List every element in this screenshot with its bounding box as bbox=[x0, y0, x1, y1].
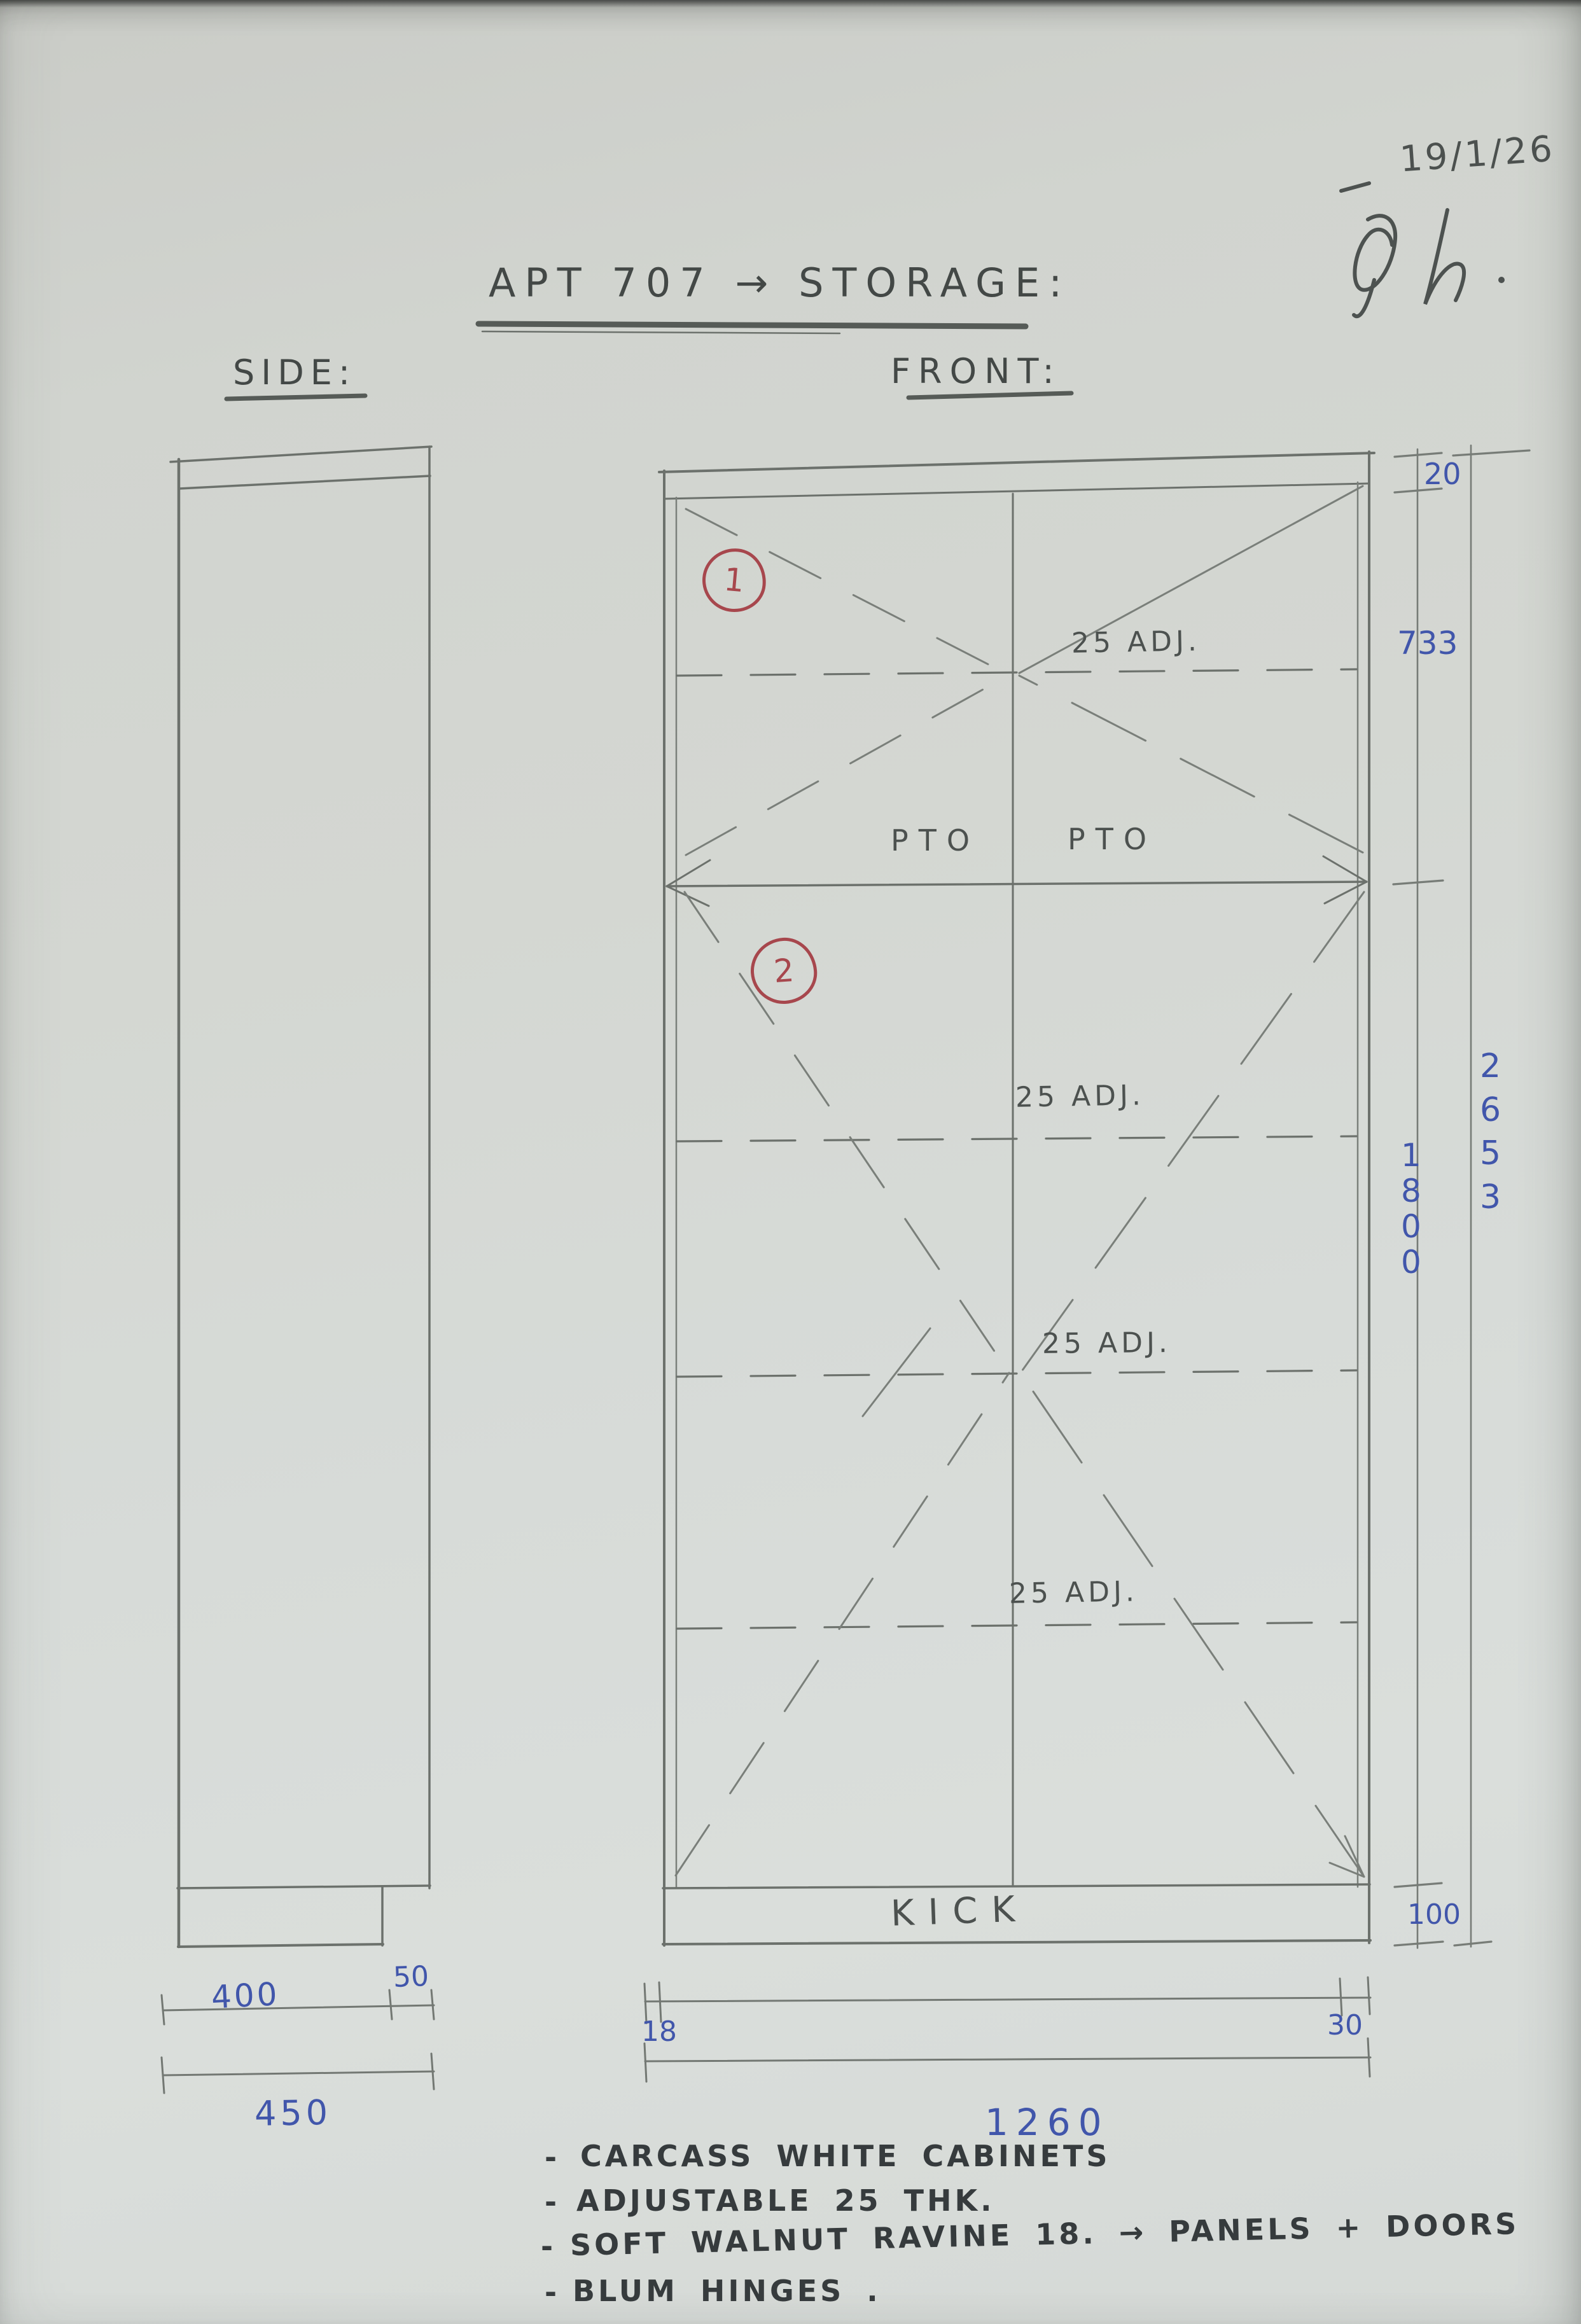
adjustable-shelf-lines bbox=[677, 669, 1356, 1629]
shelf-label-4: 25 ADJ. bbox=[1009, 1575, 1139, 1610]
shelf-label-2: 25 ADJ. bbox=[1015, 1079, 1145, 1114]
dim-kick-height: 100 bbox=[1407, 1898, 1461, 1931]
page-title: APT 707 → STORAGE: bbox=[489, 260, 1071, 306]
dim-panel-left-thk: 18 bbox=[641, 2015, 677, 2048]
note-bullet-4: - bbox=[545, 2275, 560, 2309]
shelf-label-3: 25 ADJ. bbox=[1042, 1326, 1171, 1360]
unit1-badge-number: 1 bbox=[723, 561, 746, 600]
pto-divider-line bbox=[667, 856, 1367, 906]
drawing-linework bbox=[0, 0, 1581, 2324]
signature-scribble bbox=[1341, 183, 1505, 316]
note-bullet-2: - bbox=[545, 2185, 560, 2219]
dim-total-depth: 450 bbox=[254, 2092, 331, 2134]
unit1-door-swings bbox=[686, 486, 1363, 855]
side-view-label: SIDE: bbox=[233, 352, 356, 393]
unit2-badge-number: 2 bbox=[772, 952, 795, 990]
unit2-door-swings bbox=[676, 892, 1364, 1877]
side-view-outline bbox=[171, 447, 431, 1947]
note-bullet-1: - bbox=[545, 2140, 560, 2174]
dim-unit1-height: 733 bbox=[1397, 625, 1458, 662]
front-view-label: FRONT: bbox=[891, 351, 1062, 391]
dim-top-panel-thk: 20 bbox=[1424, 457, 1461, 491]
width-dim-lines bbox=[644, 1977, 1370, 2082]
dim-carcass-depth: 400 bbox=[211, 1975, 281, 2016]
pto-label-left: PTO bbox=[891, 823, 980, 858]
dim-door-zone-depth: 50 bbox=[393, 1960, 429, 1994]
dim-unit2-height: 1800 bbox=[1401, 1138, 1421, 1280]
note-hinges: BLUM HINGES . bbox=[573, 2274, 881, 2308]
note-bullet-3: - bbox=[541, 2229, 556, 2264]
dim-panel-right-thk: 30 bbox=[1327, 2009, 1363, 2042]
side-dim-lines bbox=[162, 1990, 434, 2093]
kick-label: KICK bbox=[890, 1888, 1029, 1935]
note-adjustable: ADJUSTABLE 25 THK. bbox=[576, 2183, 995, 2218]
dim-total-width: 1260 bbox=[985, 2101, 1110, 2144]
pto-label-right: PTO bbox=[1068, 822, 1157, 856]
sketch-paper: APT 707 → STORAGE: 19/1/26 SIDE: FRONT: … bbox=[0, 0, 1581, 2324]
shelf-label-1: 25 ADJ. bbox=[1071, 625, 1201, 660]
dim-total-height: 2653 bbox=[1480, 1045, 1501, 1220]
note-carcass: CARCASS WHITE CABINETS bbox=[580, 2139, 1110, 2173]
